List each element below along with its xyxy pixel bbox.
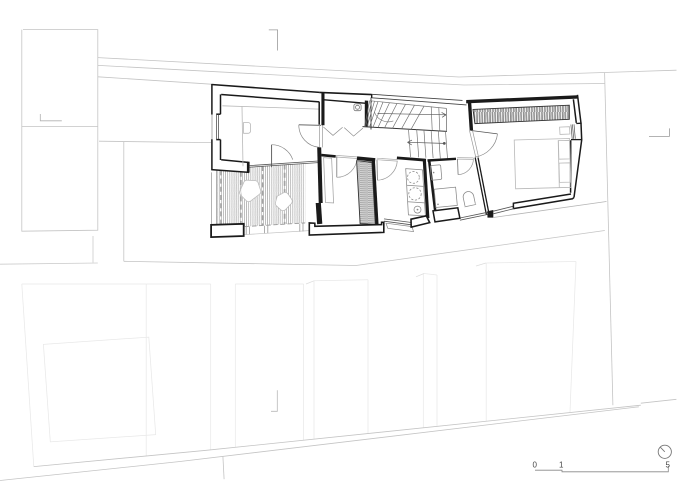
svg-text:0: 0 xyxy=(533,461,538,470)
svg-text:1: 1 xyxy=(559,461,564,470)
svg-text:5: 5 xyxy=(666,461,671,470)
